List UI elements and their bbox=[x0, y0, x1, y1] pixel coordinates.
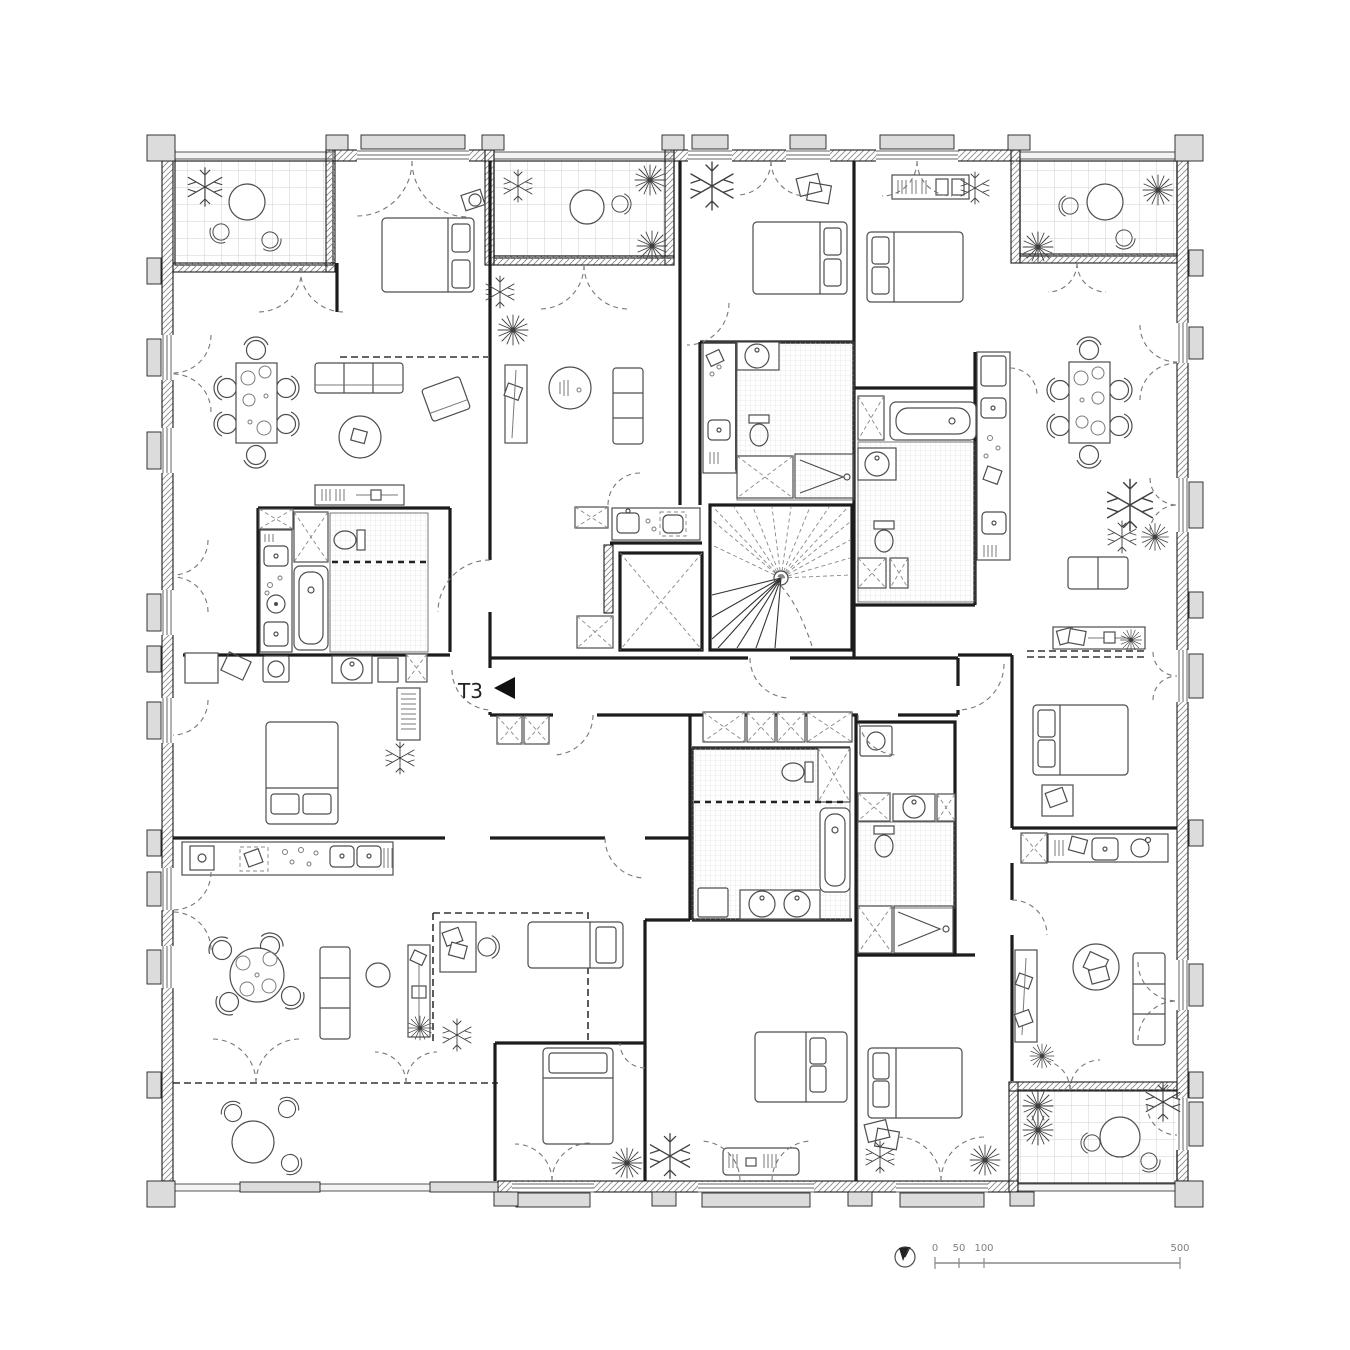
bathtub-icon bbox=[294, 566, 328, 650]
bathtub-icon bbox=[890, 402, 976, 440]
winder-stair-icon bbox=[712, 507, 850, 648]
wardrobe bbox=[1042, 785, 1073, 816]
radiator-icon bbox=[892, 175, 969, 199]
scale-tick-50: 50 bbox=[953, 1243, 966, 1254]
window bbox=[1176, 960, 1203, 1010]
rug bbox=[339, 416, 381, 458]
shelf-decor bbox=[461, 189, 485, 210]
double-bed bbox=[753, 222, 847, 294]
radiator-icon bbox=[397, 688, 420, 740]
washbasin-icon bbox=[332, 656, 372, 683]
kitchen-bottom-right bbox=[1048, 834, 1168, 862]
sofa bbox=[320, 947, 350, 1039]
dining-table bbox=[1047, 337, 1132, 468]
closet-icon bbox=[524, 716, 549, 744]
washbasin-icon bbox=[858, 448, 896, 480]
window bbox=[896, 1182, 988, 1207]
shower-icon bbox=[858, 396, 884, 440]
bathroom-top-center bbox=[703, 342, 854, 500]
window bbox=[1176, 1098, 1203, 1150]
closet-icon bbox=[703, 712, 745, 742]
dining-table bbox=[214, 337, 299, 468]
console bbox=[408, 945, 430, 1037]
radiator-icon bbox=[315, 485, 404, 505]
window bbox=[147, 946, 174, 988]
north-arrow-icon bbox=[895, 1247, 915, 1267]
double-bed bbox=[868, 1048, 962, 1118]
double-bed bbox=[755, 1032, 847, 1102]
bathroom-top-right bbox=[858, 396, 976, 602]
window bbox=[147, 428, 174, 473]
sofa bbox=[315, 363, 403, 393]
armchair bbox=[421, 376, 470, 422]
double-washbasin-icon bbox=[740, 890, 820, 919]
shower-icon bbox=[858, 906, 892, 953]
double-bed bbox=[1033, 705, 1128, 775]
closet-icon bbox=[497, 716, 522, 744]
closet-icon bbox=[858, 793, 890, 821]
closet-icon bbox=[577, 616, 613, 648]
bathroom-bottom-right bbox=[858, 726, 955, 953]
desk bbox=[504, 365, 527, 443]
double-bed bbox=[867, 232, 963, 302]
exterior-walls bbox=[162, 150, 1188, 1192]
unit-label: T3 bbox=[457, 679, 483, 703]
kitchen-top-right bbox=[977, 352, 1010, 560]
washing-machine-icon bbox=[263, 656, 289, 682]
single-bed bbox=[528, 922, 623, 968]
floor-plan-drawing: T3 0 50 100 500 bbox=[0, 0, 1350, 1350]
bathroom-top-left bbox=[259, 509, 428, 683]
closet-icon bbox=[747, 712, 775, 742]
window bbox=[786, 135, 830, 162]
shower-icon bbox=[294, 512, 328, 562]
shower-door-icon bbox=[894, 906, 953, 953]
unit-label-group: T3 bbox=[457, 677, 515, 703]
window bbox=[1176, 323, 1203, 363]
window bbox=[688, 135, 732, 162]
double-bed bbox=[382, 218, 474, 292]
closet-icon bbox=[807, 712, 852, 742]
rug bbox=[549, 367, 591, 409]
scale-tick-0: 0 bbox=[932, 1243, 938, 1254]
closet-icon bbox=[937, 794, 955, 821]
desk bbox=[1014, 950, 1037, 1042]
window bbox=[698, 1182, 814, 1207]
washing-machine-icon bbox=[860, 726, 892, 756]
terrace-table bbox=[218, 1093, 306, 1178]
shelf-decor bbox=[796, 174, 831, 204]
windows bbox=[147, 135, 1203, 1207]
kitchen-bottom-left bbox=[182, 842, 393, 875]
window bbox=[1176, 650, 1203, 702]
kitchen-top-left bbox=[260, 530, 292, 652]
window bbox=[512, 1182, 594, 1207]
window bbox=[147, 335, 174, 380]
window bbox=[1176, 478, 1203, 532]
window bbox=[147, 698, 174, 743]
closet-icon bbox=[1021, 833, 1047, 863]
sofa bbox=[613, 368, 643, 444]
elevator-icon bbox=[620, 553, 702, 650]
window bbox=[357, 135, 469, 162]
desk bbox=[440, 922, 499, 972]
pouf bbox=[366, 963, 390, 987]
double-bed bbox=[543, 1048, 613, 1144]
unit-direction-arrow-icon bbox=[494, 677, 515, 699]
closet-icon bbox=[890, 558, 908, 588]
scale-bar: 0 50 100 500 bbox=[895, 1243, 1190, 1269]
window bbox=[147, 868, 174, 910]
scale-tick-500: 500 bbox=[1170, 1243, 1189, 1254]
closet-icon bbox=[575, 507, 608, 528]
sofa bbox=[1068, 557, 1128, 589]
window bbox=[876, 135, 958, 162]
closet-icon bbox=[858, 558, 886, 588]
scale-tick-100: 100 bbox=[974, 1243, 993, 1254]
closet-icon bbox=[777, 712, 805, 742]
closet-icon bbox=[259, 509, 293, 529]
floor-plan-sheet: T3 0 50 100 500 bbox=[0, 0, 1350, 1350]
bathtub-icon bbox=[820, 808, 850, 892]
washbasin-icon bbox=[737, 342, 779, 370]
double-bed bbox=[266, 722, 338, 824]
rug bbox=[1073, 944, 1119, 990]
bathroom-bottom-center bbox=[692, 748, 850, 920]
round-dining-table bbox=[204, 929, 308, 1019]
shower-icon bbox=[737, 456, 793, 498]
kitchen-core bbox=[612, 508, 700, 540]
washbasin-icon bbox=[893, 794, 935, 821]
closet-icon bbox=[406, 654, 427, 682]
window bbox=[147, 590, 174, 635]
shower-icon bbox=[818, 748, 850, 802]
